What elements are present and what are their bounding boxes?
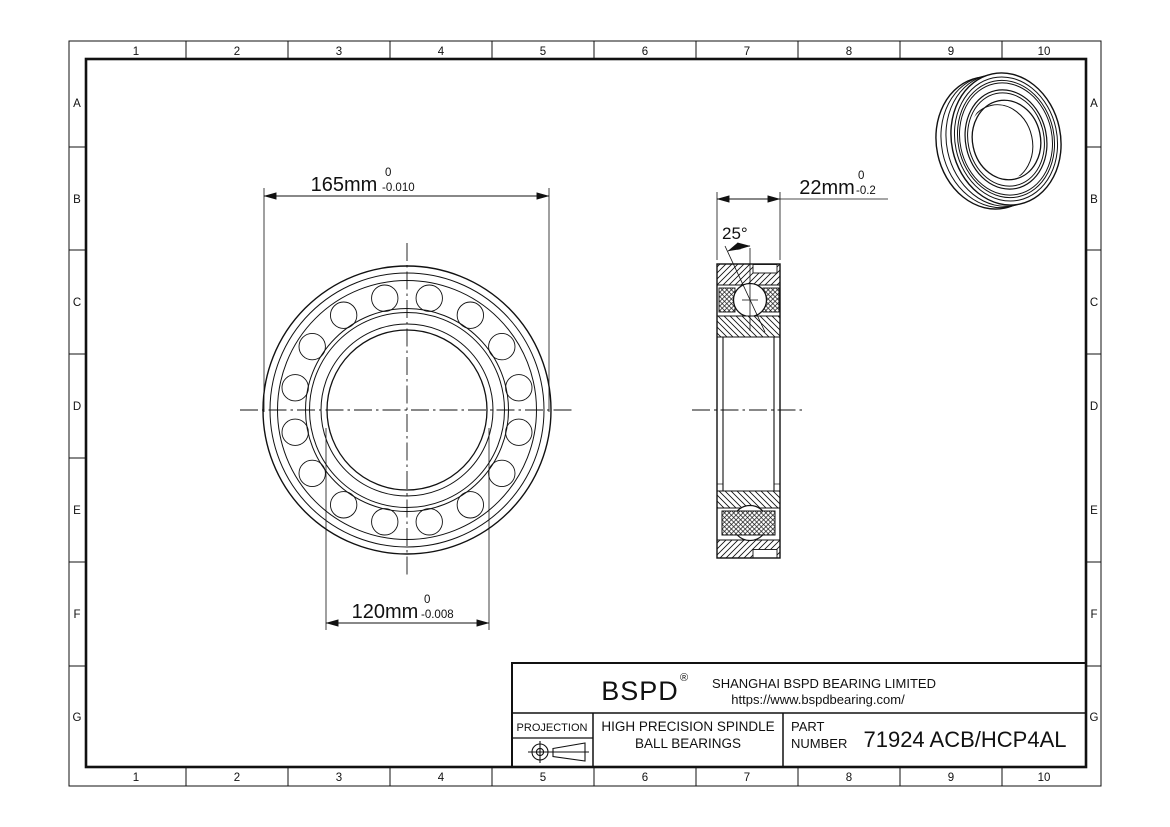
part-number-label2: NUMBER [791,736,847,751]
dimension-bore-extension-lines [326,428,489,630]
ball [372,509,398,535]
ball [489,460,515,486]
ball [457,492,483,518]
inner-border [86,59,1086,767]
zone-row-label: C [73,297,81,309]
ball [299,460,325,486]
zone-labels-bottom: 1 2 3 4 5 6 7 8 9 10 [133,772,1051,784]
zone-col-label: 8 [846,772,852,784]
zone-col-label: 1 [133,46,139,58]
dimension-bore-tol-upper: 0 [424,594,430,606]
zone-row-label: F [73,609,80,621]
ball [282,419,308,445]
side-view-section: 22mm 0 -0.2 25° [692,170,888,558]
company-logo: BSPD [601,676,679,706]
zone-col-label: 2 [234,772,240,784]
dimension-bore-text: 120mm [352,601,419,623]
title-block: BSPD ® SHANGHAI BSPD BEARING LIMITED htt… [512,663,1086,767]
dimension-od-text: 165mm [311,174,378,196]
dimension-od-tol-lower: -0.010 [382,182,415,194]
dimension-od-extension-lines [264,188,549,412]
zone-col-label: 4 [438,46,445,58]
side-view-bore-lines [717,337,780,491]
dimension-bore: 120mm 0 -0.008 [326,428,489,630]
zone-row-label: D [73,401,81,413]
zone-row-label: F [1090,609,1097,621]
ball [416,509,442,535]
zone-row-label: B [73,194,81,206]
zone-row-label: C [1090,297,1098,309]
zone-row-label: G [1090,712,1099,724]
ball [330,302,356,328]
zone-col-label: 2 [234,46,240,58]
zone-col-label: 4 [438,772,445,784]
zone-col-label: 10 [1038,772,1051,784]
projection-label: PROJECTION [517,722,588,734]
zone-col-label: 10 [1038,46,1051,58]
zone-labels-top: 1 2 3 4 5 6 7 8 9 10 [133,46,1051,58]
front-view: 165mm 0 -0.010 120mm 0 -0.008 [240,167,575,630]
zone-col-label: 7 [744,772,750,784]
zone-col-label: 5 [540,772,546,784]
dimension-od-tol-upper: 0 [385,167,391,179]
cage-section-left [719,288,735,312]
first-angle-projection-icon [528,741,589,763]
cage-mesh [722,511,775,535]
part-number-label1: PART [791,719,825,734]
ball [299,333,325,359]
zone-row-label: E [1090,505,1098,517]
front-view-centerlines [240,243,575,578]
company-website: https://www.bspdbearing.com/ [731,692,905,707]
isometric-view [924,63,1073,220]
zone-col-label: 3 [336,772,342,784]
registered-mark: ® [680,672,688,684]
ball [330,492,356,518]
ball [489,333,515,359]
sheet-border [69,41,1101,786]
zone-row-label: A [1090,98,1098,110]
zone-row-label: G [73,712,82,724]
part-number-value: 71924 ACB/HCP4AL [863,727,1066,752]
ball [506,375,532,401]
ball [416,285,442,311]
zone-col-label: 6 [642,772,648,784]
zone-row-label: E [73,505,81,517]
snap-ring-groove [753,265,777,274]
snap-ring-groove-bottom [753,550,777,559]
ball [372,285,398,311]
zone-labels: 1 2 3 4 5 6 7 8 9 10 1 2 3 4 5 6 7 8 9 1… [73,46,1099,784]
company-name: SHANGHAI BSPD BEARING LIMITED [712,676,936,691]
dimension-bore-tol-lower: -0.008 [421,609,454,621]
drawing-sheet: 1 2 3 4 5 6 7 8 9 10 1 2 3 4 5 6 7 8 9 1… [0,0,1170,827]
drawing-canvas: 1 2 3 4 5 6 7 8 9 10 1 2 3 4 5 6 7 8 9 1… [0,0,1170,827]
zone-row-label: B [1090,194,1098,206]
product-line1: HIGH PRECISION SPINDLE [601,719,774,734]
zone-col-label: 6 [642,46,648,58]
ball [282,375,308,401]
zone-row-label: D [1090,401,1098,413]
zone-col-label: 5 [540,46,546,58]
dimension-width-text: 22mm [799,177,855,199]
zone-col-label: 8 [846,46,852,58]
dimension-od: 165mm 0 -0.010 [264,167,549,412]
zone-labels-left: A B C D E F G [73,98,82,724]
ball [506,419,532,445]
ball [457,302,483,328]
product-line2: BALL BEARINGS [635,736,741,751]
zone-col-label: 9 [948,46,954,58]
zone-col-label: 9 [948,772,954,784]
side-view-top-half [717,264,780,337]
dimension-width-tol-lower: -0.2 [856,185,876,197]
zone-col-label: 3 [336,46,342,58]
zone-ticks [69,41,1101,786]
zone-col-label: 1 [133,772,139,784]
side-view-bottom-half [717,491,780,558]
zone-row-label: A [73,98,81,110]
outer-border [69,41,1101,786]
dimension-width-tol-upper: 0 [858,170,864,182]
zone-labels-right: A B C D E F G [1090,98,1099,724]
contact-angle-text: 25° [722,224,748,243]
zone-col-label: 7 [744,46,750,58]
